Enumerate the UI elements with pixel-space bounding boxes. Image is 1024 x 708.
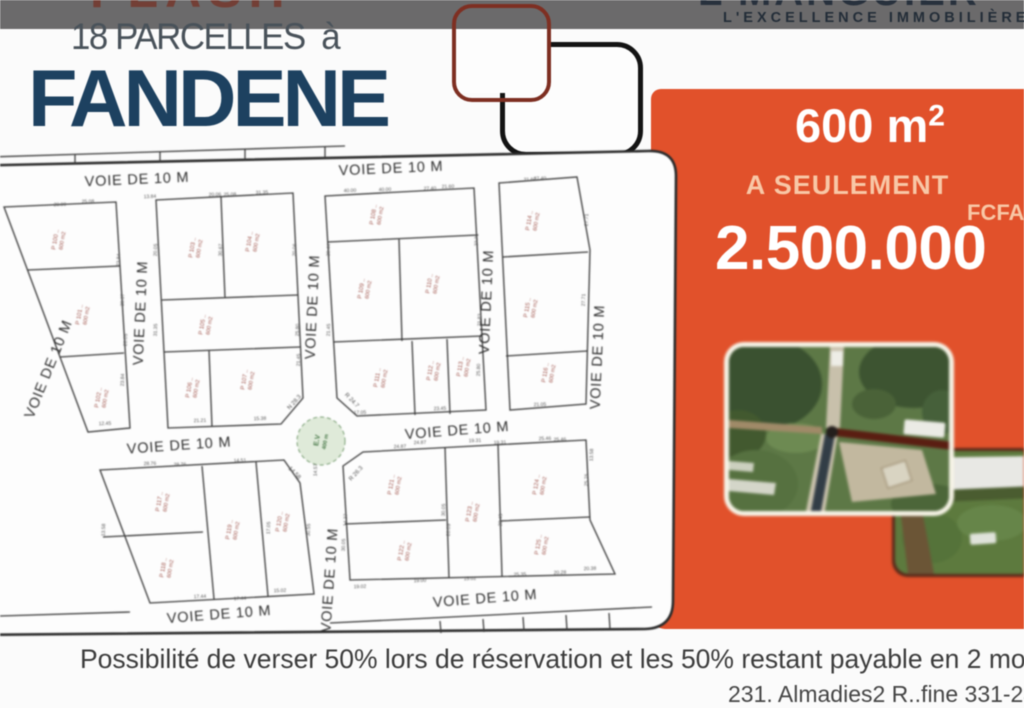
svg-text:21.21: 21.21 — [194, 418, 207, 425]
svg-text:25.46: 25.46 — [554, 437, 567, 444]
svg-text:30.55: 30.55 — [306, 523, 313, 536]
svg-text:27.71: 27.71 — [584, 213, 591, 226]
svg-text:25.46: 25.46 — [539, 436, 552, 443]
svg-text:21.60: 21.60 — [442, 184, 455, 191]
svg-text:15.02: 15.02 — [274, 588, 287, 595]
svg-text:20.05: 20.05 — [123, 333, 130, 346]
svg-text:31.35: 31.35 — [153, 323, 160, 336]
svg-text:25.80: 25.80 — [295, 323, 302, 336]
svg-text:13.58: 13.58 — [101, 523, 108, 536]
svg-text:23.84: 23.84 — [120, 373, 127, 386]
svg-text:13.84: 13.84 — [144, 194, 157, 201]
svg-text:27.71: 27.71 — [474, 233, 481, 246]
svg-text:28.76: 28.76 — [174, 462, 187, 469]
svg-text:12.45: 12.45 — [99, 421, 112, 428]
svg-text:20.06: 20.06 — [292, 243, 299, 256]
svg-text:40.00: 40.00 — [379, 187, 392, 194]
svg-text:30.44: 30.44 — [326, 243, 333, 256]
svg-text:23.45: 23.45 — [498, 513, 505, 526]
svg-text:20.05: 20.05 — [153, 243, 160, 256]
svg-text:20.38: 20.38 — [584, 566, 597, 573]
svg-text:19.00: 19.00 — [414, 578, 427, 585]
svg-text:13.58: 13.58 — [589, 448, 596, 461]
svg-text:25.80: 25.80 — [476, 363, 483, 376]
svg-text:15.02: 15.02 — [464, 576, 477, 583]
svg-text:17.05: 17.05 — [354, 410, 367, 417]
svg-text:20.09: 20.09 — [446, 523, 453, 536]
svg-text:30.05: 30.05 — [341, 538, 348, 551]
svg-text:23.84: 23.84 — [116, 253, 123, 266]
svg-text:19.31: 19.31 — [494, 440, 507, 447]
svg-text:20.28: 20.28 — [554, 570, 567, 577]
svg-text:21.45: 21.45 — [326, 323, 333, 336]
svg-text:17.44: 17.44 — [194, 594, 207, 601]
svg-text:19.31: 19.31 — [469, 438, 482, 445]
svg-text:24.87: 24.87 — [414, 440, 427, 447]
svg-text:24.87: 24.87 — [394, 444, 407, 451]
svg-text:21.45: 21.45 — [296, 353, 303, 366]
svg-text:25.08: 25.08 — [224, 192, 237, 199]
svg-text:25.08: 25.08 — [82, 199, 95, 206]
svg-text:30.67: 30.67 — [120, 293, 127, 306]
svg-text:27.71: 27.71 — [581, 293, 588, 306]
svg-text:40.00: 40.00 — [344, 188, 357, 195]
svg-text:14.37: 14.37 — [343, 513, 350, 526]
svg-text:20.00: 20.00 — [54, 202, 67, 209]
svg-text:19.02: 19.02 — [354, 584, 367, 591]
svg-text:14.57: 14.57 — [313, 463, 320, 476]
svg-text:17.05: 17.05 — [266, 521, 273, 534]
svg-text:25.35: 25.35 — [514, 572, 527, 579]
svg-text:23.45: 23.45 — [434, 406, 447, 413]
svg-text:20.06: 20.06 — [209, 192, 222, 199]
svg-text:21.60: 21.60 — [524, 177, 537, 184]
svg-text:21.05: 21.05 — [534, 402, 547, 409]
svg-text:28.76: 28.76 — [144, 461, 157, 468]
svg-text:21.83: 21.83 — [477, 313, 484, 326]
svg-text:15.38: 15.38 — [254, 416, 267, 423]
svg-text:27.40: 27.40 — [424, 186, 437, 193]
svg-text:17.44: 17.44 — [234, 596, 247, 603]
svg-text:31.35: 31.35 — [256, 190, 269, 197]
svg-text:30.05: 30.05 — [441, 503, 448, 516]
svg-text:25.75: 25.75 — [584, 473, 591, 486]
svg-text:14.51: 14.51 — [234, 458, 247, 465]
svg-text:30.67: 30.67 — [218, 243, 225, 256]
